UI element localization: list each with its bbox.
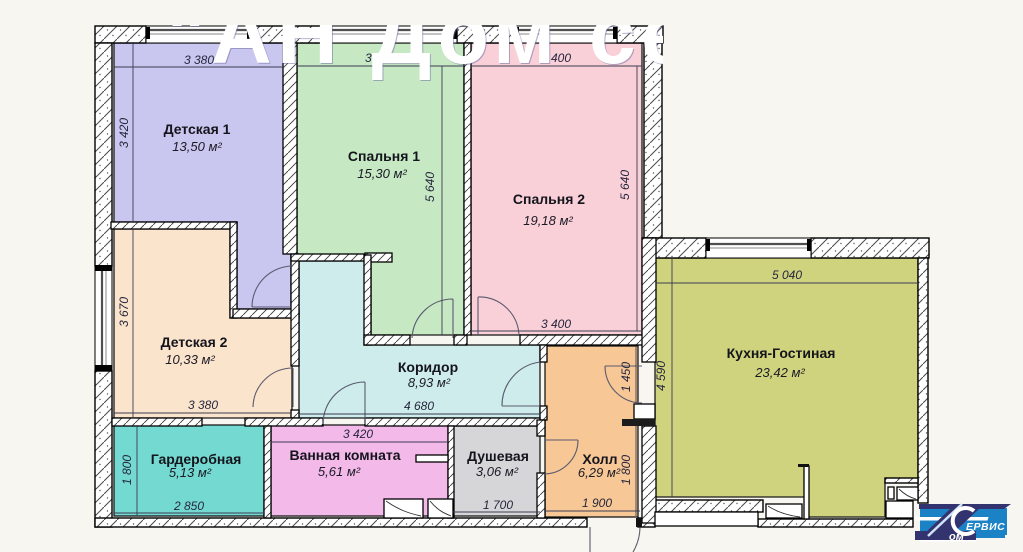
svg-text:1 450: 1 450	[619, 362, 633, 392]
svg-text:13,50 м²: 13,50 м²	[172, 139, 222, 154]
svg-text:Коридор: Коридор	[398, 359, 458, 375]
svg-text:3 380: 3 380	[188, 398, 218, 412]
svg-text:5,61 м²: 5,61 м²	[318, 464, 361, 479]
svg-text:3 670: 3 670	[117, 297, 131, 327]
svg-text:Детская 1: Детская 1	[164, 121, 231, 137]
svg-text:1 700: 1 700	[483, 498, 513, 512]
svg-text:1 900: 1 900	[582, 496, 612, 510]
svg-text:1 800: 1 800	[120, 455, 134, 485]
svg-text:3 400: 3 400	[541, 317, 571, 331]
svg-text:3 420: 3 420	[343, 427, 373, 441]
svg-text:3,06 м²: 3,06 м²	[476, 464, 519, 479]
svg-text:Детская 2: Детская 2	[161, 334, 228, 350]
svg-text:3 420: 3 420	[117, 118, 131, 148]
svg-text:Кухня-Гостиная: Кухня-Гостиная	[727, 345, 836, 361]
svg-text:Ванная комната: Ванная комната	[289, 447, 400, 463]
svg-text:6,29 м²: 6,29 м²	[578, 465, 621, 480]
svg-text:10,33 м²: 10,33 м²	[165, 352, 215, 367]
svg-text:15,30 м²: 15,30 м²	[357, 166, 407, 181]
svg-text:4 590: 4 590	[654, 361, 668, 391]
svg-text:5 640: 5 640	[618, 170, 632, 200]
svg-text:Спальня 2: Спальня 2	[513, 191, 585, 207]
svg-text:Душевая: Душевая	[467, 448, 529, 464]
svg-text:23,42 м²: 23,42 м²	[754, 365, 805, 380]
svg-text:2 850: 2 850	[173, 499, 204, 513]
svg-text:4 680: 4 680	[404, 399, 434, 413]
svg-text:5 040: 5 040	[772, 268, 802, 282]
svg-text:19,18 м²: 19,18 м²	[523, 213, 573, 228]
svg-text:1 800: 1 800	[619, 455, 633, 485]
svg-text:8,93 м²: 8,93 м²	[408, 375, 451, 390]
svg-text:5 640: 5 640	[423, 172, 437, 202]
svg-text:ЕРВИС: ЕРВИС	[966, 521, 1005, 533]
svg-text:Спальня 1: Спальня 1	[348, 148, 420, 164]
svg-text:5,13 м²: 5,13 м²	[169, 465, 212, 480]
